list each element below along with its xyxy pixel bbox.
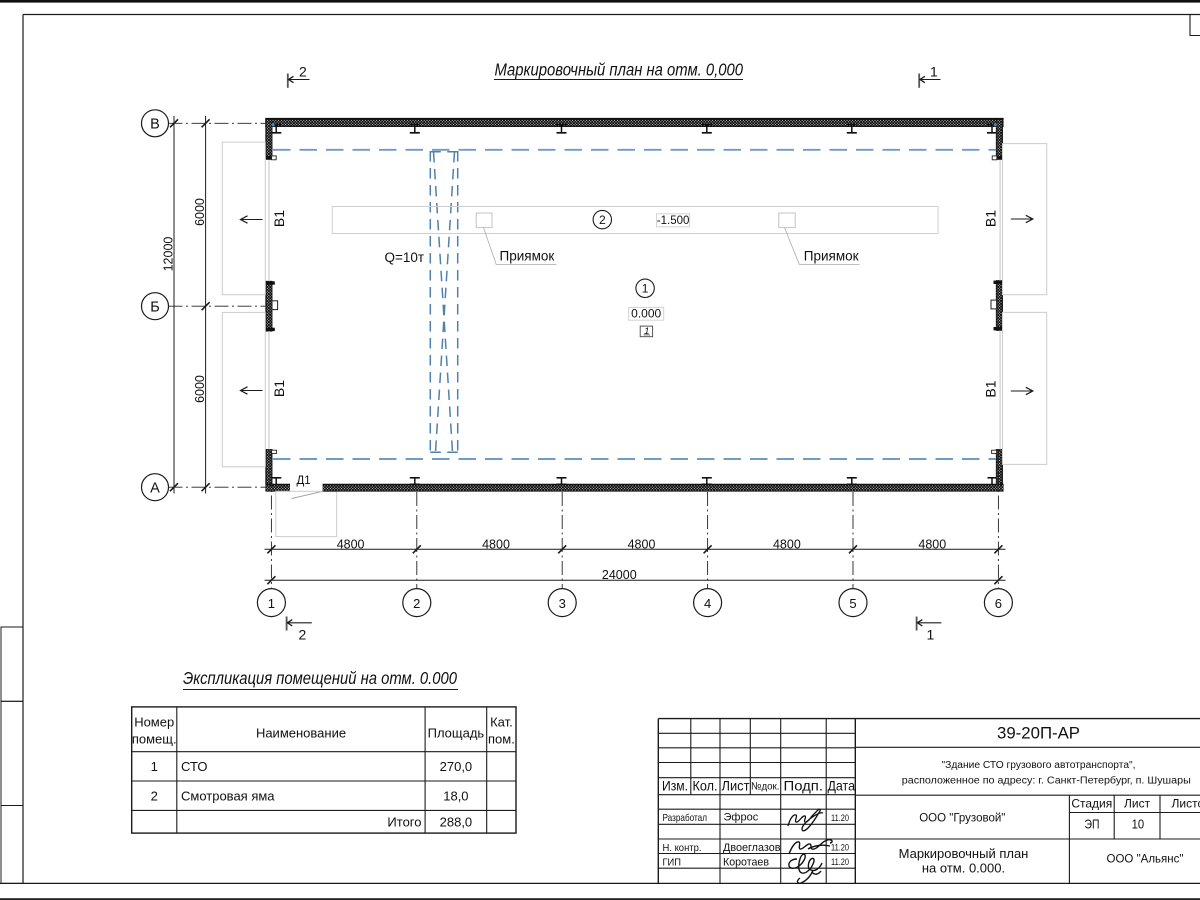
svg-text:4: 4 — [704, 596, 711, 611]
svg-text:В: В — [150, 117, 160, 133]
svg-text:1: 1 — [927, 627, 935, 643]
svg-text:3: 3 — [559, 596, 566, 611]
svg-text:0.000: 0.000 — [631, 307, 661, 321]
svg-text:Номер: Номер — [134, 715, 174, 730]
svg-text:1: 1 — [930, 64, 938, 80]
svg-text:Лист: Лист — [1124, 797, 1151, 811]
svg-text:288,0: 288,0 — [440, 815, 473, 830]
svg-text:2: 2 — [151, 788, 158, 803]
svg-text:Коротаев: Коротаев — [723, 857, 769, 869]
svg-text:пом.: пом. — [488, 732, 515, 747]
svg-text:5: 5 — [849, 596, 856, 611]
svg-text:2: 2 — [299, 627, 307, 643]
svg-text:Н. контр.: Н. контр. — [663, 842, 702, 854]
svg-text:Приямок: Приямок — [804, 249, 859, 264]
svg-text:11.20: 11.20 — [831, 813, 849, 824]
svg-text:4800: 4800 — [337, 537, 365, 551]
svg-text:6000: 6000 — [193, 198, 207, 226]
svg-text:2: 2 — [599, 213, 606, 227]
svg-text:Кол.: Кол. — [693, 778, 718, 794]
svg-text:4800: 4800 — [773, 537, 801, 551]
svg-text:10: 10 — [1132, 817, 1145, 831]
svg-text:4800: 4800 — [482, 537, 510, 551]
svg-text:-1.500: -1.500 — [657, 215, 690, 227]
svg-text:6000: 6000 — [193, 375, 207, 403]
svg-text:Разработал: Разработал — [663, 812, 708, 824]
svg-text:Листов: Листов — [1172, 797, 1200, 811]
svg-text:1: 1 — [642, 282, 649, 296]
svg-text:В1: В1 — [271, 210, 287, 227]
svg-text:2: 2 — [299, 64, 307, 80]
svg-text:2: 2 — [413, 596, 420, 611]
svg-text:Маркировочный план: Маркировочный план — [899, 846, 1029, 861]
svg-text:№док.: №док. — [751, 781, 780, 793]
svg-text:12000: 12000 — [161, 237, 175, 272]
svg-text:1: 1 — [151, 759, 158, 774]
svg-text:Итого: Итого — [387, 815, 421, 830]
svg-text:помещ.: помещ. — [132, 732, 177, 747]
svg-text:4800: 4800 — [628, 537, 656, 551]
svg-text:Q=10т: Q=10т — [385, 250, 425, 265]
svg-text:ООО "Альянс": ООО "Альянс" — [1107, 854, 1184, 866]
svg-text:Д1: Д1 — [297, 475, 311, 487]
svg-text:В1: В1 — [983, 380, 999, 397]
svg-text:Стадия: Стадия — [1071, 797, 1112, 811]
svg-text:"Здание СТО грузового автотран: "Здание СТО грузового автотранспорта", — [942, 760, 1136, 771]
svg-text:А: А — [150, 481, 160, 497]
svg-text:Маркировочный план на отм. 0,0: Маркировочный план на отм. 0,000 — [495, 60, 744, 80]
svg-text:Наименование: Наименование — [256, 726, 346, 741]
svg-text:Экспликация помещений на отм.: Экспликация помещений на отм. 0.000 — [183, 668, 457, 688]
svg-text:В1: В1 — [271, 380, 287, 397]
svg-text:В1: В1 — [983, 210, 999, 227]
svg-text:Двоеглазов: Двоеглазов — [723, 842, 781, 854]
svg-text:1: 1 — [268, 596, 275, 611]
svg-text:Смотровая яма: Смотровая яма — [181, 788, 275, 803]
svg-text:Приямок: Приямок — [500, 249, 555, 264]
svg-text:Изм.: Изм. — [662, 778, 688, 794]
svg-text:Кат.: Кат. — [490, 715, 513, 730]
svg-text:ЭП: ЭП — [1085, 817, 1100, 831]
svg-text:ГИП: ГИП — [663, 857, 682, 869]
svg-text:Лист: Лист — [722, 778, 751, 794]
svg-text:Эфрос: Эфрос — [724, 812, 759, 824]
svg-text:на отм. 0.000.: на отм. 0.000. — [922, 860, 1005, 875]
svg-text:11.20: 11.20 — [831, 857, 849, 868]
svg-text:Дата: Дата — [828, 778, 856, 794]
svg-text:СТО: СТО — [181, 759, 207, 774]
svg-text:270,0: 270,0 — [440, 759, 473, 774]
svg-text:4800: 4800 — [918, 537, 946, 551]
svg-text:1: 1 — [644, 326, 649, 337]
svg-text:Б: Б — [150, 300, 160, 316]
svg-text:расположенное по адресу: г. Са: расположенное по адресу: г. Санкт-Петерб… — [902, 774, 1191, 786]
svg-text:6: 6 — [995, 596, 1002, 611]
svg-text:39-20П-АР: 39-20П-АР — [997, 724, 1080, 743]
svg-text:24000: 24000 — [602, 568, 637, 582]
svg-text:Подп.: Подп. — [784, 778, 824, 794]
svg-text:ООО "Грузовой": ООО "Грузовой" — [919, 813, 1005, 825]
svg-text:18,0: 18,0 — [443, 788, 468, 803]
svg-text:11.20: 11.20 — [831, 842, 849, 853]
svg-text:Площадь: Площадь — [428, 726, 485, 741]
